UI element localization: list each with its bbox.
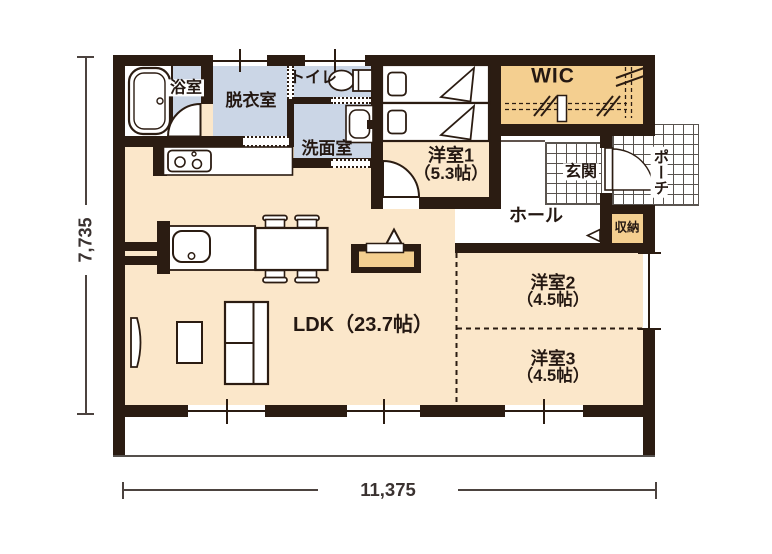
washbasin <box>346 106 373 143</box>
stove-counter <box>164 147 293 175</box>
room-label-toilet: トイレ <box>289 69 337 86</box>
dining-table <box>256 216 328 283</box>
step-arrow-icon <box>588 230 601 242</box>
front-door-swing <box>605 148 654 190</box>
desk-lamp-icon <box>387 230 402 244</box>
room-label-bedroom1: 洋室1 <box>428 146 474 165</box>
sofa <box>225 302 268 384</box>
single-bed <box>382 103 489 141</box>
room-label-washroom: 洗面室 <box>302 140 353 158</box>
room-label-wic: WIC <box>531 66 575 89</box>
dimension-tick <box>122 482 124 499</box>
fixtures-layer <box>0 0 772 554</box>
dimension-line-left <box>85 275 87 415</box>
dimension-width: 11,375 <box>360 479 416 501</box>
dimension-tick <box>77 413 94 415</box>
dimension-tick <box>655 482 657 499</box>
room-label-ldk: LDK（23.7帖） <box>293 315 433 337</box>
single-bed <box>382 65 489 103</box>
room-label-bedroom2: 洋室2 <box>531 274 576 293</box>
room-label-dressing: 脱衣室 <box>226 92 277 110</box>
kitchen-island <box>125 221 255 274</box>
room-label-porch: ポーチ <box>651 147 668 198</box>
tv <box>131 318 141 367</box>
dimension-line-left <box>85 57 87 205</box>
room-label-storage: 収納 <box>614 221 639 235</box>
room-label-hall: ホール <box>509 206 563 225</box>
room-size-bedroom1: （5.3帖） <box>414 165 489 183</box>
side-table <box>177 322 202 363</box>
dimension-line-bottom <box>458 489 657 491</box>
floor-plan: 浴室 脱衣室 トイレ 洗面室 洋室1 （5.3帖） WIC 玄関 ポーチ ホール… <box>0 0 772 554</box>
dimension-tick <box>77 56 94 58</box>
room-label-entrance: 玄関 <box>563 163 599 180</box>
counter-desk <box>351 230 421 274</box>
dimension-line-bottom <box>123 489 318 491</box>
room-size-bedroom3: （4.5帖） <box>517 368 589 386</box>
dimension-height: 7,735 <box>76 217 97 262</box>
room-size-bedroom2: （4.5帖） <box>517 292 589 310</box>
room-label-bathroom: 浴室 <box>168 79 204 96</box>
room-label-bedroom3: 洋室3 <box>531 350 576 369</box>
bathtub <box>129 68 170 134</box>
bathroom-door-swing <box>168 104 201 137</box>
